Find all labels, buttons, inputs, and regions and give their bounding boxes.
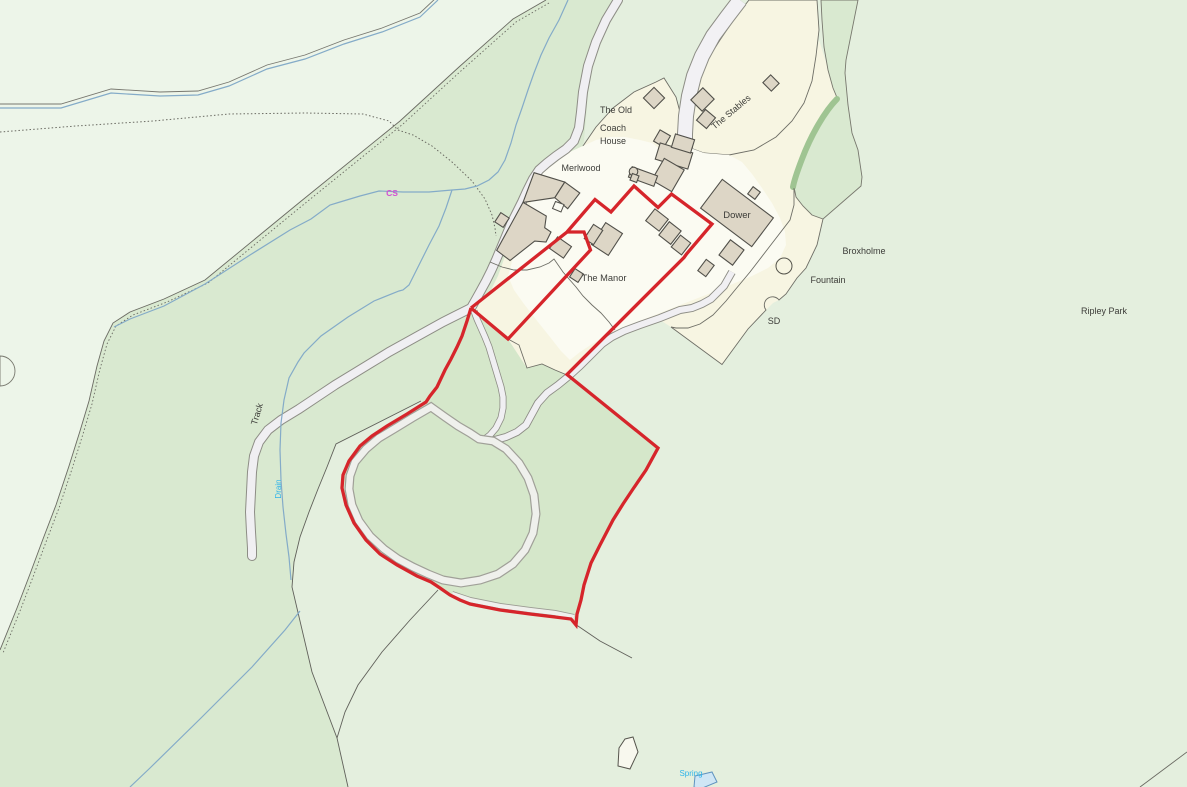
svg-text:Drain: Drain bbox=[274, 479, 283, 498]
svg-text:The Old: The Old bbox=[600, 105, 632, 115]
svg-text:Merlwood: Merlwood bbox=[561, 163, 600, 173]
svg-text:Broxholme: Broxholme bbox=[842, 246, 885, 256]
svg-text:Coach: Coach bbox=[600, 123, 626, 133]
svg-text:Fountain: Fountain bbox=[810, 275, 845, 285]
svg-text:Ripley Park: Ripley Park bbox=[1081, 306, 1128, 316]
svg-text:SD: SD bbox=[768, 316, 781, 326]
svg-text:House: House bbox=[600, 136, 626, 146]
svg-text:The Manor: The Manor bbox=[582, 273, 627, 283]
svg-text:Spring: Spring bbox=[679, 769, 702, 778]
svg-text:Dower: Dower bbox=[723, 210, 750, 221]
svg-text:CS: CS bbox=[386, 188, 398, 198]
